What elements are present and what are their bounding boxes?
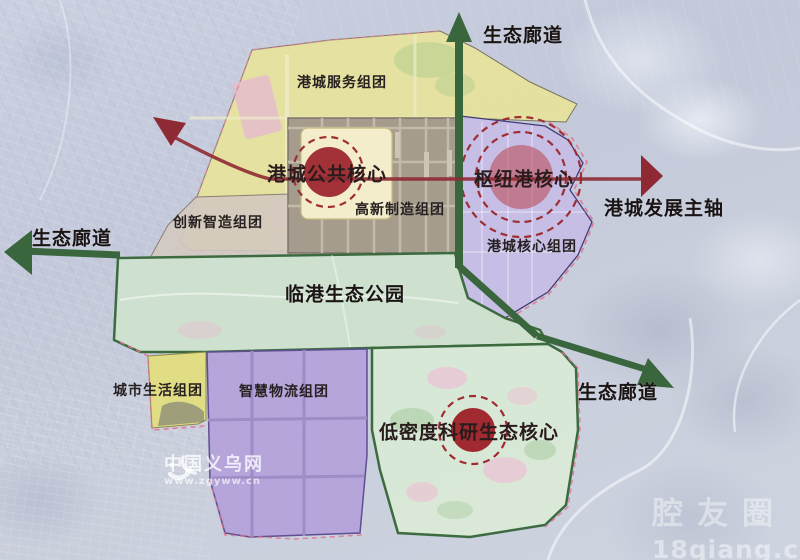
label-corridor-top: 生态廊道 xyxy=(483,21,563,48)
label-corridor-left: 生态廊道 xyxy=(32,224,112,251)
label-public-core: 港城公共核心 xyxy=(267,160,387,187)
label-service-cluster: 港城服务组团 xyxy=(297,72,387,92)
development-axis-arrow-right xyxy=(641,155,663,197)
watermark-yiwu: 中国义乌网 www.zgyww.cn xyxy=(164,450,264,487)
yiwu-logo-icon xyxy=(164,450,202,488)
label-eco-park: 临港生态公园 xyxy=(285,280,405,307)
corridor-left-arrow xyxy=(4,230,32,275)
label-corridor-bottom-right: 生态廊道 xyxy=(578,378,658,405)
label-city-life-cluster: 城市生活组团 xyxy=(113,380,203,400)
label-innovation-cluster: 创新智造组团 xyxy=(173,212,263,232)
watermark-qiang: 腔友圈 18qiang.com xyxy=(652,488,800,560)
label-smart-logistics-cluster: 智慧物流组团 xyxy=(239,381,329,401)
watermark-qiang-name: 腔友圈 xyxy=(652,488,800,533)
label-research-core: 低密度科研生态核心 xyxy=(379,418,559,445)
label-hightech-cluster: 高新制造组团 xyxy=(355,199,445,219)
label-development-axis: 港城发展主轴 xyxy=(604,194,724,221)
corridor-top-arrow xyxy=(446,12,472,42)
planning-map: 生态廊道 港城服务组团 港城公共核心 枢纽港核心 港城发展主轴 创新智造组团 高… xyxy=(0,0,800,560)
corridor-left-shaft xyxy=(24,251,120,255)
label-hub-port-core: 枢纽港核心 xyxy=(474,165,574,192)
label-port-core-cluster: 港城核心组团 xyxy=(487,236,577,256)
logistics-area xyxy=(207,349,367,537)
watermark-qiang-url: 18qiang.com xyxy=(652,535,800,560)
